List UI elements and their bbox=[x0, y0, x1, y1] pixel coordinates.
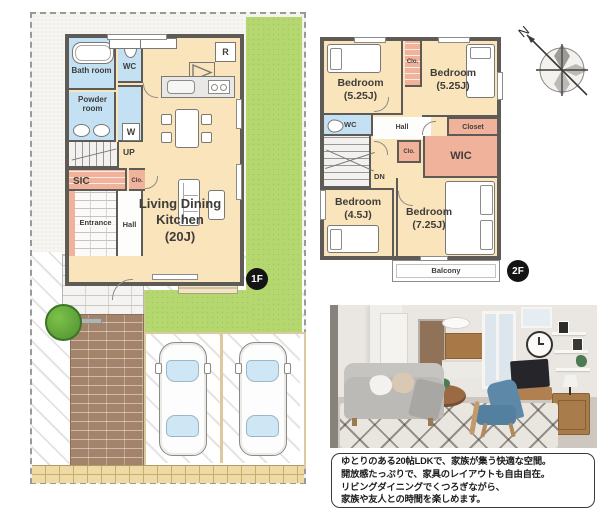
pillow bbox=[480, 185, 493, 215]
house-1f: Bath room WC Powder room W UP SIC bbox=[65, 34, 244, 286]
chair-icon bbox=[201, 114, 212, 125]
photo-lamp-shade bbox=[563, 375, 578, 387]
car-rear-window bbox=[246, 415, 279, 437]
photo-wall-clock bbox=[526, 331, 553, 358]
caption-line: 開放感たっぷりで、家具のレイアウトも自由自在。 bbox=[341, 468, 585, 481]
photo-lamp-pole bbox=[569, 387, 571, 395]
car-mirror bbox=[235, 363, 242, 374]
up-label: UP bbox=[123, 148, 135, 157]
room-label: Balcony bbox=[431, 267, 460, 275]
bed-icon bbox=[327, 225, 379, 253]
refrigerator-box: R bbox=[215, 42, 236, 62]
photo-shelf bbox=[556, 368, 590, 371]
bedroom-name: Bedroom bbox=[337, 77, 383, 89]
room-label: SIC bbox=[73, 176, 90, 187]
tree-icon bbox=[45, 304, 82, 341]
garden-bottom bbox=[142, 290, 251, 335]
washer-icon: W bbox=[122, 123, 140, 141]
car-windshield bbox=[166, 360, 199, 382]
bedroom-size: (5.25J) bbox=[344, 90, 377, 102]
ldk-name: Living Dining Kitchen bbox=[139, 196, 221, 227]
sidewalk-curb bbox=[32, 465, 304, 483]
parking-area bbox=[144, 332, 306, 469]
photo-frame bbox=[572, 338, 583, 351]
stove-icon bbox=[208, 80, 230, 94]
room-wc-2f: WC bbox=[324, 115, 373, 136]
photo-frame bbox=[558, 321, 569, 334]
pillow bbox=[330, 229, 342, 250]
dining-table bbox=[175, 109, 199, 148]
room-powder: Powder room bbox=[69, 92, 116, 120]
window bbox=[497, 72, 503, 100]
side-table-panel bbox=[558, 400, 586, 430]
stairs-up bbox=[69, 142, 119, 168]
sofa-leg bbox=[428, 418, 433, 426]
bedroom-size: (7.25J) bbox=[412, 219, 445, 231]
clock-hand bbox=[538, 343, 544, 345]
ldk-label: Living Dining Kitchen (20J) bbox=[121, 196, 239, 245]
room-label: Clo. bbox=[405, 59, 420, 66]
photo-kitchen-counter bbox=[442, 360, 484, 378]
bed-icon bbox=[327, 44, 381, 73]
room-entrance: Entrance bbox=[69, 191, 116, 256]
closet-1f: Clo. bbox=[129, 168, 145, 191]
photo-sofa bbox=[344, 363, 444, 419]
closet-2f-top: Clo. bbox=[405, 41, 422, 87]
floor-badge-1f: 1F bbox=[246, 268, 268, 290]
photo-wood-cabinet bbox=[445, 333, 483, 359]
room-label: Bedroom (5.25J) bbox=[422, 67, 484, 93]
bedroom-bl: Bedroom (4.5J) bbox=[324, 188, 394, 256]
room-label: WIC bbox=[425, 150, 497, 162]
stair-diagonal bbox=[325, 152, 375, 169]
window-mullion bbox=[496, 314, 499, 380]
stair-diagonal bbox=[72, 148, 117, 160]
kitchen-sink-icon bbox=[167, 80, 195, 94]
window bbox=[107, 34, 167, 40]
photo-blue-chair bbox=[472, 381, 526, 435]
sofa-leg bbox=[352, 418, 357, 426]
car-rear-window bbox=[166, 415, 199, 437]
bedroom-name: Bedroom bbox=[335, 196, 381, 208]
property-floorplan-sheet: Bath room WC Powder room W UP SIC bbox=[0, 0, 600, 515]
window bbox=[236, 99, 242, 129]
bedroom-name: Bedroom bbox=[406, 206, 452, 218]
kitchen-counter bbox=[161, 76, 235, 98]
chair-icon bbox=[161, 132, 172, 143]
car-windshield bbox=[246, 360, 279, 382]
site-plan-1f: Bath room WC Powder room W UP SIC bbox=[30, 12, 306, 484]
caption-line: 家族や友人との時間を楽しめます。 bbox=[341, 493, 585, 506]
car-mirror bbox=[284, 363, 291, 374]
window bbox=[354, 37, 386, 43]
compass-rose: N bbox=[515, 26, 597, 106]
room-label: Clo. bbox=[129, 178, 145, 185]
dn-label: DN bbox=[374, 173, 385, 181]
door-arc bbox=[143, 83, 158, 98]
bedroom-tl: Bedroom (5.25J) bbox=[324, 41, 403, 115]
description-box: ゆとりのある20帖LDKで、家族が集う快適な空間。 開放感たっぷりで、家具のレイ… bbox=[331, 453, 595, 508]
bedroom-size: (4.5J) bbox=[344, 209, 371, 221]
chair-icon bbox=[161, 114, 172, 125]
photo-ceiling-light bbox=[442, 317, 470, 329]
room-label: WC bbox=[118, 63, 141, 72]
living-room-photo bbox=[330, 305, 597, 448]
stairs-down bbox=[324, 136, 371, 188]
car-icon bbox=[239, 342, 287, 456]
window bbox=[320, 190, 326, 220]
bedroom-size: (5.25J) bbox=[436, 80, 469, 92]
pillow bbox=[470, 47, 491, 59]
sink-icon bbox=[93, 124, 110, 137]
closet-2f-mid: Clo. bbox=[397, 140, 421, 163]
sink-icon bbox=[73, 124, 90, 137]
sofa-pillow-white bbox=[368, 373, 394, 397]
sofa-pillow-beige bbox=[391, 372, 416, 395]
plan-2f: Bedroom (5.25J) Clo. Bedroom (5.25J) WC bbox=[320, 30, 510, 285]
ldk-size: (20J) bbox=[165, 229, 195, 244]
pillow bbox=[480, 220, 493, 250]
closet-2f: Closet bbox=[447, 117, 497, 136]
balcony: Balcony bbox=[392, 260, 500, 282]
chair-seat bbox=[476, 405, 516, 425]
bedroom-tr: Bedroom (5.25J) bbox=[422, 41, 497, 117]
room-label: Bedroom (4.5J) bbox=[324, 196, 392, 222]
approach-path bbox=[70, 314, 144, 467]
house-2f: Bedroom (5.25J) Clo. Bedroom (5.25J) WC bbox=[320, 37, 501, 260]
photo-left-wall bbox=[330, 305, 338, 448]
room-laundry: W bbox=[118, 85, 143, 142]
window bbox=[152, 274, 198, 280]
room-label: Entrance bbox=[75, 219, 116, 227]
caption-line: リビングダイニングでくつろぎながら、 bbox=[341, 481, 585, 494]
bedroom-name: Bedroom bbox=[430, 67, 476, 79]
bedroom-br: Bedroom (7.25J) bbox=[396, 178, 497, 256]
room-label: WC bbox=[344, 121, 357, 129]
car-mirror bbox=[155, 363, 162, 374]
floor-badge-2f: 2F bbox=[507, 260, 529, 282]
bathtub-icon bbox=[72, 42, 114, 64]
window bbox=[438, 37, 470, 43]
caption-line: ゆとりのある20帖LDKで、家族が集う快適な空間。 bbox=[341, 455, 585, 468]
room-sic: SIC bbox=[69, 168, 127, 191]
vanity-sinks bbox=[69, 120, 116, 142]
toilet-icon bbox=[328, 120, 344, 133]
room-label: Bath room bbox=[69, 67, 114, 76]
car-icon bbox=[159, 342, 207, 456]
window bbox=[236, 164, 242, 200]
room-wic: WIC bbox=[423, 136, 497, 178]
room-label: Powder room bbox=[71, 96, 114, 114]
car-mirror bbox=[204, 363, 211, 374]
photo-plant bbox=[576, 355, 587, 367]
pillow bbox=[330, 48, 342, 70]
door-arc bbox=[145, 176, 158, 189]
room-label: Clo. bbox=[399, 149, 419, 156]
room-label: Closet bbox=[449, 124, 497, 132]
room-label: Bedroom (7.25J) bbox=[398, 206, 460, 232]
chair-icon bbox=[201, 132, 212, 143]
door-arc bbox=[374, 141, 388, 155]
photo-high-window bbox=[521, 307, 552, 328]
